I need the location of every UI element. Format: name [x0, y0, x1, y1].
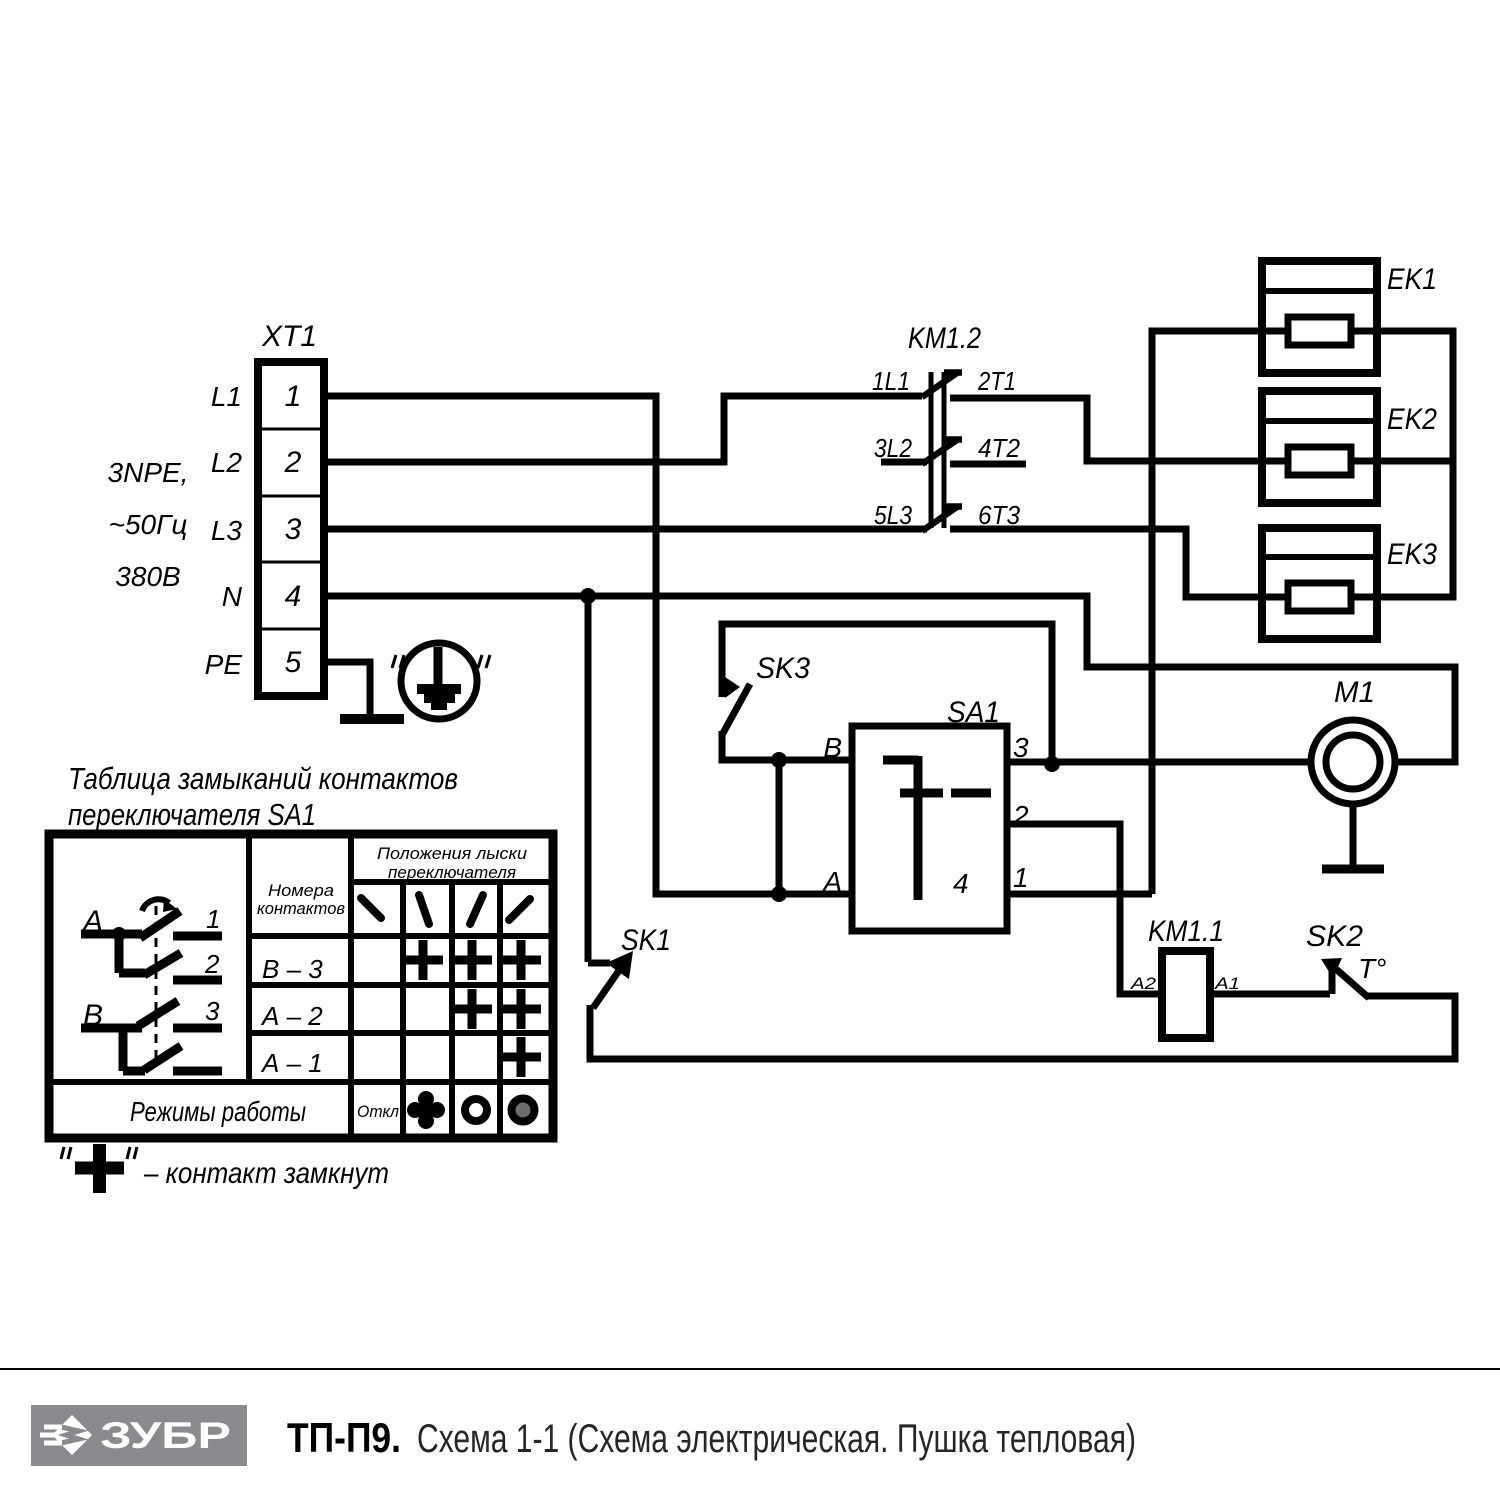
- svg-text:3NPE,: 3NPE,: [108, 457, 189, 488]
- svg-text:2T1: 2T1: [977, 366, 1016, 396]
- svg-text:3: 3: [285, 513, 302, 546]
- svg-text:KM1.1: KM1.1: [1148, 915, 1224, 948]
- svg-text:Откл: Откл: [357, 1102, 399, 1121]
- svg-text:SK3: SK3: [756, 652, 810, 685]
- svg-text:2: 2: [1012, 800, 1029, 831]
- svg-text:L2: L2: [211, 447, 243, 478]
- svg-text:SK2: SK2: [1306, 920, 1363, 953]
- svg-text:ЗУБР: ЗУБР: [100, 1415, 231, 1456]
- svg-text:1L1: 1L1: [872, 366, 910, 396]
- svg-text:M1: M1: [1334, 676, 1375, 709]
- svg-text:XT1: XT1: [261, 320, 317, 353]
- svg-text:2: 2: [284, 446, 302, 479]
- svg-text:PE: PE: [205, 649, 243, 680]
- svg-text:Положения лыски: Положения лыски: [377, 844, 528, 863]
- svg-text:L3: L3: [211, 515, 243, 546]
- svg-text:T°: T°: [1358, 953, 1386, 984]
- svg-text:В – 3: В – 3: [262, 954, 323, 984]
- svg-text:ТП-П9.: ТП-П9.: [287, 1414, 401, 1461]
- svg-text:EK3: EK3: [1387, 538, 1437, 571]
- svg-text:A2: A2: [1130, 974, 1157, 993]
- svg-text:3L2: 3L2: [874, 433, 912, 463]
- svg-text:5: 5: [285, 646, 302, 679]
- svg-text:А: А: [81, 905, 103, 938]
- svg-text:Режимы работы: Режимы работы: [130, 1096, 306, 1127]
- svg-text:4: 4: [953, 868, 969, 899]
- svg-text:B: B: [823, 732, 842, 763]
- svg-text:4T2: 4T2: [978, 433, 1020, 463]
- svg-text:переключателя: переключателя: [388, 863, 516, 882]
- svg-text:3: 3: [205, 996, 220, 1026]
- svg-text:SK1: SK1: [621, 924, 671, 957]
- svg-text:1: 1: [1013, 862, 1029, 893]
- svg-text:~50Гц: ~50Гц: [109, 509, 188, 540]
- svg-text:1: 1: [285, 380, 302, 413]
- svg-text:SA1: SA1: [947, 696, 1000, 729]
- svg-text:2: 2: [204, 949, 220, 979]
- svg-text:Номера: Номера: [268, 881, 334, 900]
- svg-text:EK1: EK1: [1387, 263, 1437, 296]
- svg-text:А – 1: А – 1: [260, 1048, 323, 1078]
- svg-text:контактов: контактов: [257, 899, 345, 918]
- svg-text:A: A: [821, 866, 842, 897]
- svg-text:6T3: 6T3: [978, 500, 1020, 530]
- svg-text:1: 1: [206, 904, 220, 934]
- svg-text:EK2: EK2: [1387, 403, 1437, 436]
- svg-text:5L3: 5L3: [874, 500, 912, 530]
- svg-text:L1: L1: [211, 381, 242, 412]
- svg-text:Схема 1-1 (Схема электрическая: Схема 1-1 (Схема электрическая. Пушка те…: [417, 1417, 1136, 1461]
- svg-text:– контакт замкнут: – контакт замкнут: [143, 1157, 389, 1190]
- svg-text:А – 2: А – 2: [260, 1001, 323, 1031]
- svg-text:4: 4: [285, 580, 302, 613]
- svg-text:N: N: [222, 581, 243, 612]
- svg-text:380В: 380В: [115, 561, 180, 592]
- svg-text:A1: A1: [1214, 974, 1240, 993]
- svg-text:Таблица замыканий контактов: Таблица замыканий контактов: [68, 761, 458, 796]
- svg-text:KM1.2: KM1.2: [908, 322, 981, 355]
- svg-text:В: В: [83, 999, 103, 1032]
- svg-text:переключателя SA1: переключателя SA1: [68, 797, 316, 832]
- svg-text:3: 3: [1013, 732, 1029, 763]
